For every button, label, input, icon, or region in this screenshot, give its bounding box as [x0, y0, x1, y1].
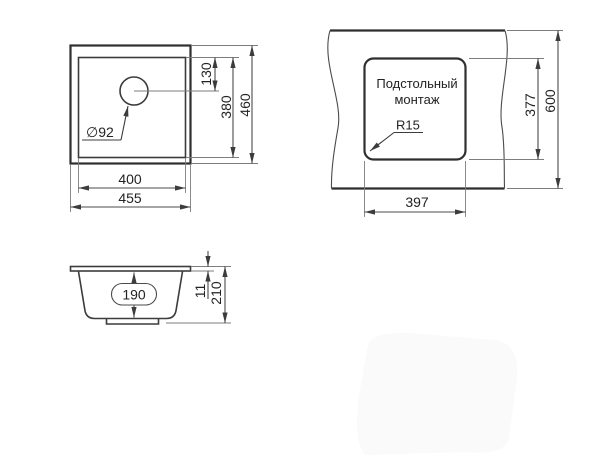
dim-bowl-width: 400 [79, 171, 186, 188]
dim-hole-offset-value: 130 [198, 62, 214, 86]
technical-drawing: 130 380 460 400 455 ∅92 [0, 0, 600, 457]
dim-overall-height: 460 [237, 46, 253, 164]
drain-fitting-profile [107, 319, 159, 324]
sink-bowl-rect [79, 58, 186, 158]
dim-rim-thickness-value: 11 [192, 284, 208, 299]
dim-countertop-depth: 600 [542, 31, 558, 189]
mount-label-line2: монтаж [394, 92, 439, 107]
dim-overall-height-value: 460 [237, 93, 253, 117]
countertop-break-left [328, 31, 339, 189]
dim-rim-thickness: 11 [192, 251, 208, 299]
installation-view: Подстольный монтаж R15 377 600 397 [328, 31, 563, 218]
top-view: 130 380 460 400 455 ∅92 [71, 46, 259, 213]
dim-cutout-width: 397 [365, 194, 466, 212]
dim-hole-offset: 130 [198, 58, 215, 92]
dim-overall-width-value: 455 [118, 190, 142, 206]
callout-drain-diameter: ∅92 [82, 106, 128, 140]
section-view: 190 11 210 [71, 251, 232, 324]
dim-countertop-depth-value: 600 [542, 89, 558, 113]
ghost-watermark [357, 333, 517, 455]
dim-bowl-width-value: 400 [118, 171, 142, 187]
dim-cutout-height-value: 377 [522, 93, 538, 117]
rim-profile [71, 267, 191, 272]
technical-drawing-sheet: 130 380 460 400 455 ∅92 [0, 0, 600, 457]
dim-bowl-height: 380 [218, 58, 234, 158]
dim-bowl-depth: 190 [112, 273, 157, 318]
dim-overall-width: 455 [71, 190, 191, 207]
dim-cutout-width-value: 397 [405, 194, 429, 210]
countertop-break-right [501, 31, 507, 189]
dim-bowl-height-value: 380 [218, 95, 234, 119]
dim-bowl-depth-value: 190 [122, 287, 146, 303]
drain-diameter-label: ∅92 [86, 124, 114, 140]
dim-cutout-height: 377 [522, 59, 538, 160]
callout-corner-radius: R15 [370, 118, 423, 152]
dim-overall-depth-value: 210 [208, 281, 224, 305]
corner-radius-label: R15 [396, 118, 420, 133]
dim-overall-depth: 210 [208, 267, 225, 324]
mount-label-line1: Подстольный [376, 76, 457, 91]
cutout-rect [365, 59, 466, 160]
